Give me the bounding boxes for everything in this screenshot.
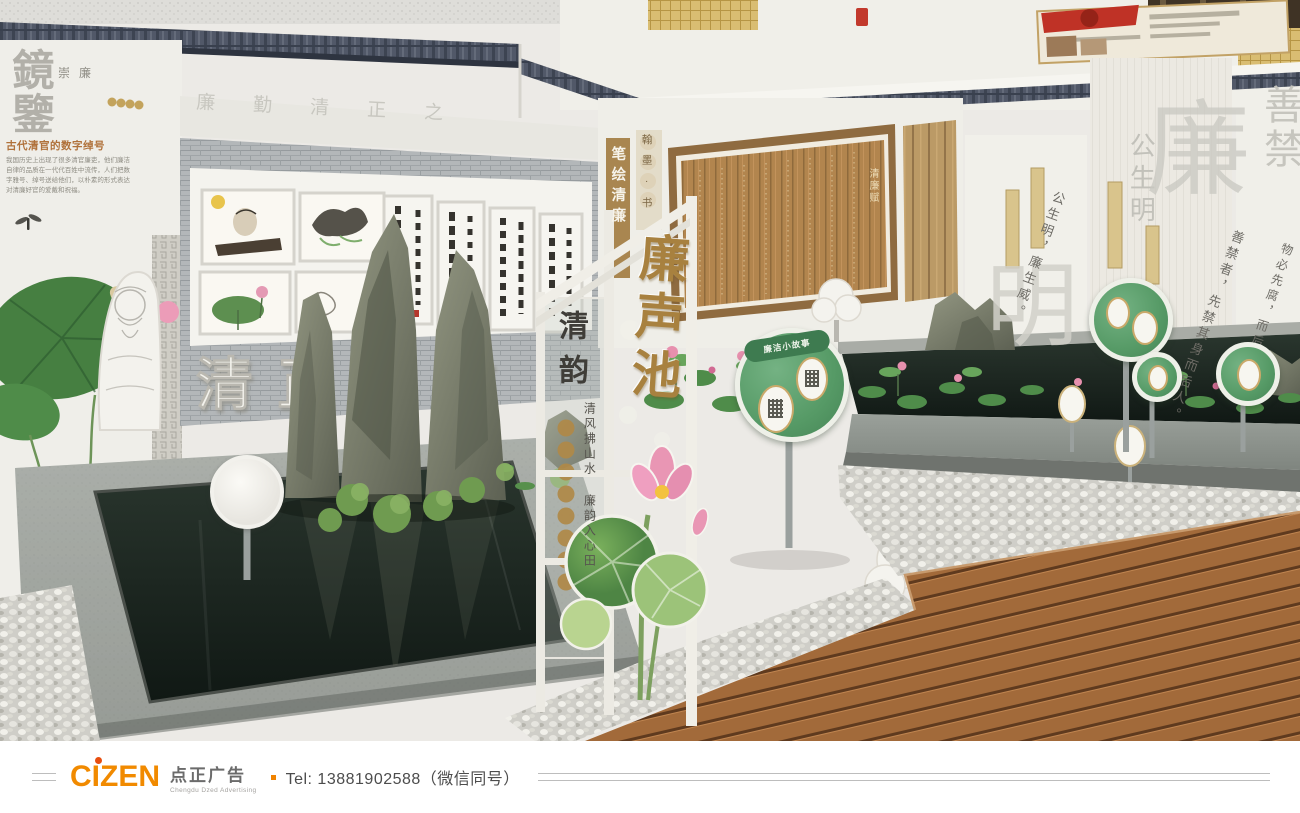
footer-bar: CIZEN 点正广告 Chengdu Dzed Advertising Tel:… <box>0 741 1300 813</box>
brand-text: CIZEN <box>70 760 160 793</box>
brand-chinese-name: 点正广告 <box>170 761 257 786</box>
qr-oval <box>796 357 828 401</box>
qr-oval <box>758 385 794 433</box>
exhibition-hall-render: 清正廉洁 <box>0 0 1300 741</box>
footer-rule-right <box>538 773 1270 781</box>
jingjian-title: 鏡鑒 <box>8 48 51 136</box>
wood-batten-panel <box>903 120 958 302</box>
oval-sign <box>1115 426 1145 466</box>
framed-painting <box>202 190 294 264</box>
calligraphy-board <box>490 208 534 330</box>
glass-panel-title: 清韵 <box>552 310 588 398</box>
qr-oval <box>1106 297 1130 329</box>
brush-strip-title: 笔绘清廉 <box>608 146 625 228</box>
left-wall-paragraph: 我国历史上出现了很多清官廉吏，他们廉洁自律的品质在一代代百姓中流传，人们把数字雅… <box>6 156 130 196</box>
glass-panel-slogan: 清风拂山水 廉韵入心田 <box>582 402 596 652</box>
brand-english-name: Chengdu Dzed Advertising <box>170 787 257 794</box>
lotus-leaf-sign <box>1089 278 1173 362</box>
ink-strip-tag: 翰墨·书 <box>640 134 653 218</box>
bullet-separator <box>271 775 276 780</box>
photo-thumbnail <box>1046 36 1077 57</box>
qr-oval <box>1132 311 1158 345</box>
qr-oval <box>1237 359 1261 391</box>
brand-chinese-block: 点正广告 Chengdu Dzed Advertising <box>170 761 257 794</box>
qr-oval <box>1148 365 1168 391</box>
lotus-leaf-sign-large: 廉洁小故事 <box>735 328 849 442</box>
logo-dot <box>95 757 102 764</box>
watermark-shanjin: 善禁 <box>1256 84 1300 172</box>
framed-painting <box>300 193 384 261</box>
framed-painting <box>200 272 290 334</box>
gate-post <box>536 292 545 712</box>
brand-logo: CIZEN <box>70 760 160 794</box>
round-white-sign <box>210 455 284 529</box>
seal-medallion <box>108 98 117 107</box>
qr-code <box>805 370 819 387</box>
mini-scroll-strip <box>1146 226 1159 284</box>
mini-scroll-strip <box>1108 182 1122 268</box>
sign-label: 廉洁小故事 <box>763 336 812 355</box>
render-canvas: 清正廉洁 <box>0 0 1300 813</box>
oval-sign <box>1059 386 1085 422</box>
lotus-leaf-sign <box>1216 342 1280 406</box>
bamboo-panel-title: 清廉赋 <box>866 168 878 204</box>
lotus-leaf-sign-small <box>1132 352 1182 402</box>
red-seal-plaque <box>856 8 868 26</box>
watermark-lian: 廉 <box>1146 88 1250 213</box>
footer-rule-left <box>32 773 56 781</box>
left-wall-heading: 古代清官的数字绰号 <box>6 140 105 153</box>
bamboo-scroll-panel <box>668 124 898 322</box>
yellow-tile-column <box>648 0 758 30</box>
photo-thumbnail <box>1080 38 1107 55</box>
jingjian-subtitle: 崇廉 <box>58 66 100 80</box>
phone-number: Tel: 13881902588（微信同号） <box>286 765 520 789</box>
upper-display-board <box>1037 0 1289 63</box>
qr-code <box>768 399 783 418</box>
